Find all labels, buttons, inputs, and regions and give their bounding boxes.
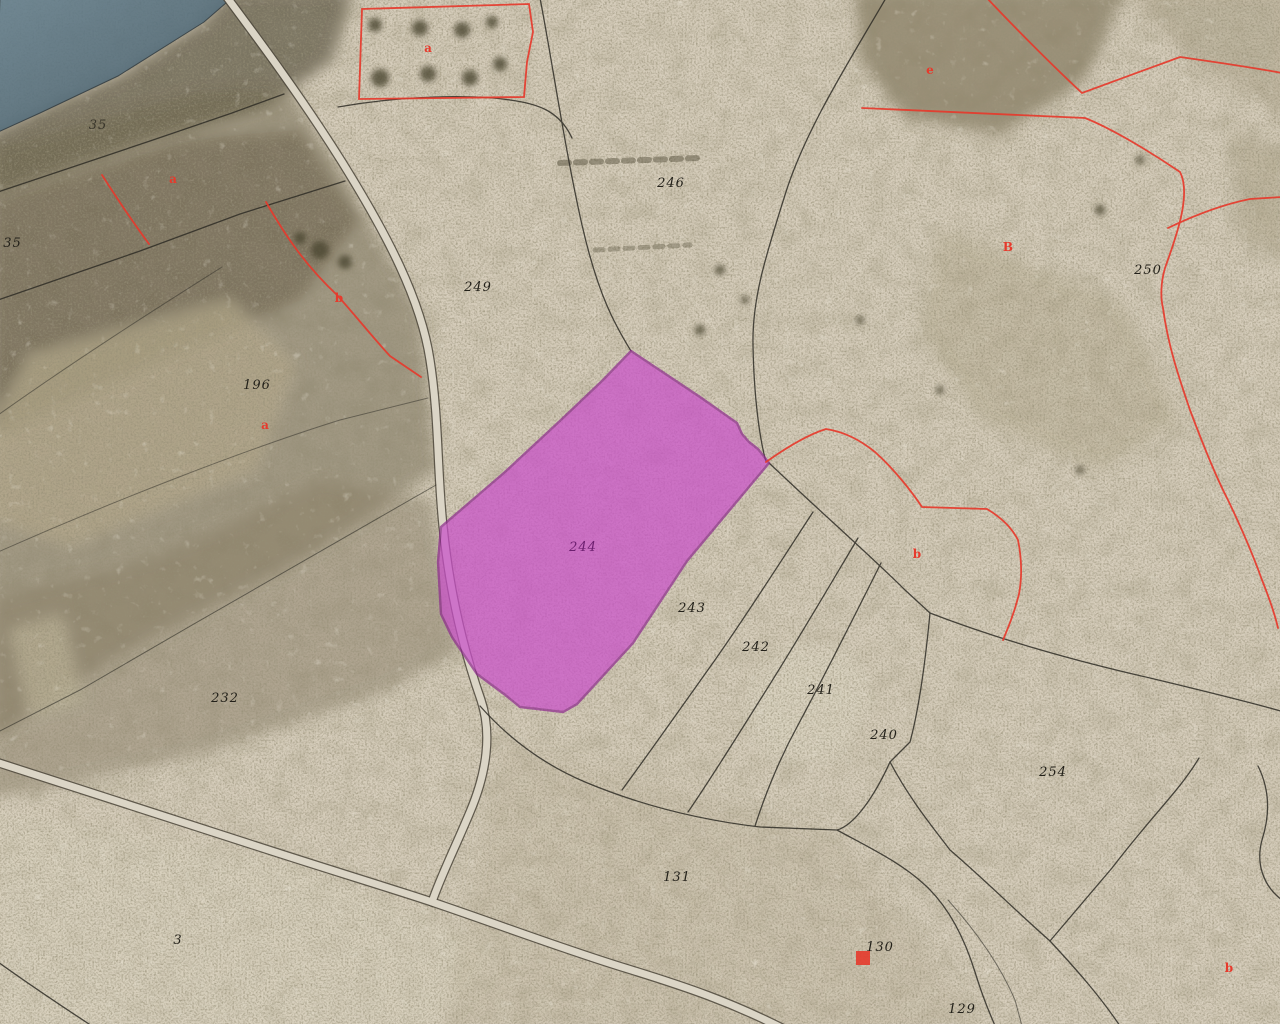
- red-subparcel-letter: b: [913, 547, 921, 561]
- parcel-number-label: 3: [173, 933, 182, 948]
- parcel-number-label: 241: [806, 683, 835, 698]
- parcel-number-label: 129: [948, 1002, 976, 1017]
- parcel-number-label: 232: [210, 691, 239, 706]
- parcel-number-label: 254: [1038, 765, 1067, 780]
- red-subparcel-letter: b: [335, 291, 343, 305]
- parcel-number-label: 242: [741, 640, 770, 655]
- parcel-number-label: 243: [677, 601, 706, 616]
- parcel-number-label: 249: [463, 280, 492, 295]
- red-subparcel-letter: a: [424, 41, 432, 55]
- parcel-number-label: 244: [568, 540, 597, 555]
- red-subparcel-letter: a: [261, 418, 269, 432]
- parcel-number-label: 131: [663, 870, 691, 885]
- parcel-number-label: 35: [89, 118, 108, 133]
- parcel-number-label: 250: [1133, 263, 1162, 278]
- parcel-number-label: 130: [866, 940, 894, 955]
- parcel-number-label: 135: [0, 236, 22, 251]
- map-viewport[interactable]: 2462492501961353524424324224124025423213…: [0, 0, 1280, 1024]
- parcel-number-label: 196: [243, 378, 271, 393]
- red-subparcel-letter: B: [1003, 240, 1013, 254]
- red-subparcel-letter: b: [1225, 961, 1233, 975]
- parcel-number-label: 240: [869, 728, 898, 743]
- cadastral-map-canvas[interactable]: 2462492501961353524424324224124025423213…: [0, 0, 1280, 1024]
- red-subparcel-letter: e: [926, 63, 934, 77]
- red-subparcel-letter: a: [169, 172, 177, 186]
- parcel-number-label: 246: [656, 176, 685, 191]
